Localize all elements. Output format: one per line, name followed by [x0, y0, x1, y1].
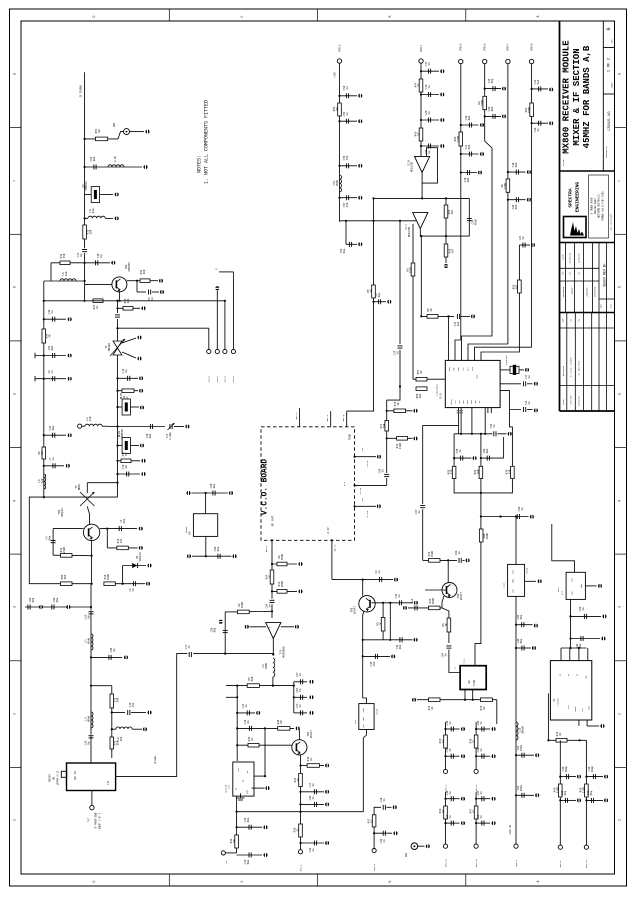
svg-text:0F: 0F [417, 83, 420, 87]
svg-text:APPROVED: APPROVED [594, 286, 597, 297]
svg-text:45b: 45b [372, 661, 376, 666]
svg-text:B: B [388, 880, 392, 882]
svg-text:0F: 0F [431, 706, 434, 710]
svg-text:MC33/5D: MC33/5D [408, 227, 411, 237]
svg-text:MC33/5D: MC33/5D [411, 162, 414, 172]
svg-text:Vin: Vin [362, 724, 365, 727]
svg-text:1n: 1n [396, 351, 399, 355]
svg-text:MALAGA 6062: MALAGA 6062 [594, 198, 597, 214]
svg-text:10R: 10R [477, 469, 480, 474]
svg-text:MX800 RECEIVER MODULE: MX800 RECEIVER MODULE [562, 40, 572, 154]
svg-text:1n: 1n [151, 297, 154, 301]
svg-text:45b: 45b [345, 202, 349, 207]
svg-text:RF OUT: RF OUT [272, 515, 275, 526]
svg-text:2: 2 [618, 713, 622, 715]
svg-text:100R: 100R [107, 573, 110, 580]
svg-text:302: 302 [64, 574, 67, 579]
svg-text:APP: APP [562, 317, 565, 322]
svg-text:IC4: IC4 [561, 590, 564, 595]
svg-text:0R: 0R [98, 129, 101, 133]
svg-text:NOTES:: NOTES: [197, 155, 203, 173]
svg-text:2N2369: 2N2369 [128, 262, 131, 272]
svg-text:450R: 450R [431, 550, 434, 557]
svg-text:1n: 1n [449, 791, 452, 795]
svg-text:1n: 1n [51, 310, 54, 314]
svg-text:S-1+6: S-1+6 [366, 510, 369, 517]
svg-text:C-P+5: C-P+5 [366, 460, 369, 467]
svg-text:BC847: BC847 [460, 592, 463, 600]
svg-text:6: 6 [618, 286, 622, 288]
svg-text:1n: 1n [449, 815, 452, 819]
svg-text:30b: 30b [148, 433, 152, 438]
svg-text:10R: 10R [143, 269, 146, 274]
svg-text:60b: 60b [467, 144, 471, 149]
svg-text:1n: 1n [346, 112, 349, 116]
svg-text:1a: 1a [521, 507, 524, 511]
svg-text:0p: 0p [88, 615, 91, 619]
svg-text:0p: 0p [80, 253, 83, 257]
svg-text:78L05: 78L05 [376, 708, 379, 715]
svg-text:0C: 0C [442, 739, 445, 743]
svg-text:0.3R: 0.3R [114, 156, 117, 162]
svg-text:2R: 2R [370, 289, 373, 293]
svg-text:2u2: 2u2 [457, 321, 460, 326]
svg-text:0p: 0p [428, 150, 431, 154]
svg-text:10C: 10C [451, 209, 454, 214]
svg-text:60a: 60a [51, 345, 54, 350]
svg-text:45MHZ FOR BANDS A,B: 45MHZ FOR BANDS A,B [582, 45, 592, 148]
svg-text:100K: 100K [432, 597, 435, 604]
svg-text:1n: 1n [346, 86, 349, 90]
svg-text:DRAWN: DRAWN [570, 287, 573, 294]
svg-text:0R: 0R [336, 107, 339, 111]
svg-text:60a: 60a [520, 614, 523, 619]
svg-text:W 3: W 3 [343, 481, 346, 486]
svg-text:Vout: Vout [570, 591, 573, 596]
svg-text:IC-D: IC-D [440, 393, 443, 399]
svg-text:LO: LO [107, 781, 110, 785]
svg-text:RFD-11: RFD-11 [585, 859, 588, 868]
svg-text:6: 6 [13, 286, 17, 288]
svg-text:1n: 1n [299, 704, 302, 708]
svg-text:45a: 45a [132, 702, 135, 707]
svg-text:1 OF 2: 1 OF 2 [608, 57, 612, 72]
svg-text:RFD-3: RFD-3 [444, 784, 447, 791]
svg-text:160R: 160R [241, 601, 244, 608]
svg-text:250R: 250R [281, 580, 284, 587]
svg-text:0F: 0F [417, 132, 420, 136]
svg-text:1K: 1K [379, 622, 382, 626]
svg-text:45M15B: 45M15B [121, 429, 124, 439]
svg-text:A: A [536, 15, 540, 17]
svg-text:0F: 0F [559, 732, 562, 736]
svg-text:ML#9: ML#9 [120, 392, 123, 399]
svg-text:TCXO: TCXO [473, 679, 476, 686]
svg-text:1n: 1n [449, 748, 452, 752]
svg-text:100R: 100R [409, 266, 412, 273]
svg-text:1n: 1n [493, 424, 496, 428]
svg-text:11/01/97: 11/01/97 [578, 252, 581, 263]
svg-text:DATE: DATE [562, 399, 565, 405]
svg-text:0R: 0R [233, 839, 236, 843]
svg-text:TITLE: TITLE [562, 159, 565, 166]
svg-text:D: D [92, 880, 96, 882]
svg-text:60b: 60b [466, 177, 470, 182]
svg-text:10F: 10F [419, 393, 422, 398]
svg-text:1K: 1K [430, 308, 433, 312]
svg-text:RFD-5: RFD-5 [475, 784, 478, 791]
svg-text:CHECKED: CHECKED [586, 287, 589, 297]
svg-text:1n: 1n [480, 748, 483, 752]
svg-text:RF IF: RF IF [74, 770, 77, 779]
svg-text:60b: 60b [514, 162, 518, 167]
svg-text:0C: 0C [442, 809, 445, 813]
svg-text:1a: 1a [458, 551, 461, 555]
svg-text:60p: 60p [491, 78, 494, 83]
svg-text:1n: 1n [428, 111, 431, 115]
svg-text:BAT-0: BAT-0 [342, 414, 345, 421]
svg-text:RFD-9: RFD-9 [559, 860, 562, 867]
svg-text:MIXER & IF SECTION: MIXER & IF SECTION [572, 48, 582, 145]
svg-text:5: 5 [13, 393, 17, 395]
svg-text:110R: 110R [399, 442, 402, 449]
svg-text:1a: 1a [418, 510, 421, 514]
svg-text:CS815-1G: CS815-1G [608, 111, 612, 131]
svg-text:+13: +13 [361, 447, 364, 452]
svg-text:2-20p: 2-20p [169, 432, 172, 440]
svg-text:1n: 1n [480, 721, 483, 725]
svg-text:3uH: 3uH [65, 271, 68, 276]
svg-text:407: 407 [452, 248, 455, 253]
svg-text:22R: 22R [450, 469, 453, 474]
svg-text:50R: 50R [117, 740, 120, 745]
svg-text:3uH: 3uH [92, 208, 95, 213]
svg-text:RFD-2: RFD-2 [515, 859, 518, 866]
svg-text:60p: 60p [590, 790, 593, 795]
svg-text:SHEET: SHEET [611, 81, 614, 88]
svg-text:4: 4 [13, 500, 17, 502]
svg-text:100p: 100p [591, 765, 594, 772]
svg-text:1uH: 1uH [89, 416, 92, 421]
svg-text:Vout: Vout [362, 708, 365, 713]
svg-text:1C: 1C [297, 828, 300, 832]
svg-text:360uH: 360uH [522, 726, 525, 734]
svg-text:45b: 45b [345, 155, 349, 160]
svg-text:1n: 1n [132, 588, 135, 592]
svg-text:+10V: +10V [333, 72, 336, 78]
svg-text:60b: 60b [213, 627, 217, 632]
svg-text:SEAXX REV B+: SEAXX REV B+ [603, 263, 607, 287]
svg-text:1n: 1n [398, 594, 401, 598]
svg-text:DATE: DATE [562, 254, 565, 260]
svg-text:BFQ34+: BFQ34+ [61, 507, 64, 517]
svg-text:R5N: R5N [448, 367, 451, 370]
svg-text:1N4148: 1N4148 [139, 552, 142, 562]
svg-text:60a: 60a [378, 292, 381, 297]
svg-text:1n: 1n [188, 645, 191, 649]
svg-text:G: G [606, 27, 612, 30]
svg-text:DATA: DATA [574, 706, 577, 712]
svg-text:22R: 22R [509, 469, 512, 474]
svg-text:1n: 1n [51, 370, 54, 374]
svg-text:1n: 1n [480, 791, 483, 795]
svg-text:4R: 4R [49, 334, 52, 338]
svg-text:60a: 60a [213, 483, 216, 488]
svg-text:60a: 60a [247, 859, 250, 864]
svg-text:0C: 0C [125, 452, 128, 456]
svg-text:CN6: CN6 [113, 122, 116, 127]
svg-text:1n: 1n [383, 839, 386, 843]
svg-text:0C: 0C [251, 737, 254, 741]
svg-text:60b: 60b [490, 106, 494, 111]
svg-text:60b: 60b [467, 115, 471, 120]
svg-text:60a: 60a [52, 425, 55, 430]
svg-text:1K: 1K [397, 402, 400, 406]
svg-text:1R: 1R [269, 575, 272, 579]
svg-text:60A: 60A [486, 448, 489, 453]
svg-text:RFD-5: RFD-5 [460, 43, 463, 51]
svg-text:1: 1 [618, 819, 622, 821]
svg-text:200R: 200R [336, 179, 339, 186]
svg-text:3d: 3d [124, 465, 128, 469]
svg-text:10R: 10R [383, 423, 386, 428]
svg-text:0C: 0C [96, 305, 99, 309]
svg-text:BAT-3: BAT-3 [334, 544, 337, 551]
svg-text:0C: 0C [370, 819, 373, 823]
svg-text:60a: 60a [520, 638, 523, 643]
svg-text:260R: 260R [265, 662, 268, 669]
svg-text:0p: 0p [100, 254, 103, 258]
svg-text:CLF: CLF [462, 367, 465, 370]
svg-text:PHONE +61 9 2484 2783: PHONE +61 9 2484 2783 [601, 191, 604, 221]
svg-text:0C: 0C [472, 809, 475, 813]
svg-text:RFD-8: RFD-8 [530, 43, 533, 51]
svg-text:78L05: 78L05 [526, 567, 529, 574]
svg-text:1n: 1n [269, 604, 272, 608]
svg-text:+13: +13 [361, 497, 364, 502]
svg-text:1a: 1a [312, 796, 315, 800]
svg-text:1a: 1a [245, 704, 248, 708]
svg-text:2u2: 2u2 [537, 79, 540, 84]
svg-text:220R: 220R [481, 99, 484, 106]
svg-text:X2: X2 [468, 680, 471, 684]
svg-text:0p: 0p [125, 369, 128, 373]
svg-text:1a: 1a [582, 607, 585, 611]
svg-text:REVISION: REVISION [562, 365, 565, 376]
svg-text:2u2: 2u2 [411, 598, 414, 603]
svg-text:60a: 60a [217, 546, 220, 551]
svg-text:D: D [92, 15, 96, 17]
svg-text:0C: 0C [472, 739, 475, 743]
svg-text:MSA0886: MSA0886 [283, 646, 286, 657]
svg-text:1n: 1n [428, 62, 431, 66]
svg-text:50R: 50R [251, 676, 254, 681]
svg-text:11/01/99: 11/01/99 [569, 252, 572, 263]
svg-text:LRFMS-2-17: LRFMS-2-17 [56, 770, 59, 785]
svg-text:5 TRUDE ROAD: 5 TRUDE ROAD [590, 197, 593, 214]
svg-text:SPECTRA: SPECTRA [568, 188, 574, 208]
svg-text:IC2: IC2 [502, 582, 505, 587]
svg-text:CN4-4: CN4-4 [232, 375, 235, 382]
svg-text:G: SER P/NS: G: SER P/NS [578, 360, 581, 375]
svg-text:CN4-3: CN4-3 [223, 375, 226, 382]
svg-text:60b: 60b [398, 644, 402, 649]
svg-text:60uH: 60uH [88, 715, 91, 722]
svg-text:0p: 0p [113, 648, 116, 652]
svg-text:PRF: PRF [453, 367, 456, 370]
svg-text:1n: 1n [480, 815, 483, 819]
svg-text:GND: GND [463, 400, 465, 403]
svg-text:IF SIGNAL: IF SIGNAL [79, 84, 82, 97]
svg-text:40uH: 40uH [88, 637, 91, 644]
svg-text:1n: 1n [528, 401, 531, 405]
svg-text:1b0: 1b0 [119, 736, 123, 741]
svg-text:1n: 1n [428, 85, 431, 89]
svg-text:220R: 220R [528, 106, 531, 113]
svg-text:100p: 100p [565, 765, 568, 772]
svg-text:1a: 1a [378, 570, 381, 574]
svg-text:M1: M1 [53, 776, 56, 780]
svg-text:C: C [240, 880, 244, 882]
svg-text:CN4-2: CN4-2 [216, 375, 219, 382]
svg-text:REFIN: REFIN [451, 399, 453, 404]
svg-text:(C) Copyright: (C) Copyright [610, 213, 613, 231]
svg-text:Vout: Vout [511, 570, 514, 575]
svg-text:TA78L05: TA78L05 [224, 784, 227, 793]
svg-text:Y1RA BSL: Y1RA BSL [505, 354, 508, 365]
svg-text:60a: 60a [49, 535, 52, 540]
svg-text:1n: 1n [299, 673, 302, 677]
svg-text:1-P+6: 1-P+6 [359, 487, 362, 494]
svg-text:BAT-2: BAT-2 [295, 412, 298, 419]
svg-text:IC3: IC3 [228, 784, 231, 789]
svg-text:218R: 218R [63, 546, 66, 553]
svg-text:CN2: CN2 [405, 852, 408, 857]
svg-text:497: 497 [120, 538, 123, 543]
svg-text:1n: 1n [445, 653, 448, 657]
svg-text:RFD-20: RFD-20 [475, 858, 478, 867]
svg-text:A: A [536, 880, 540, 882]
svg-text:110R: 110R [457, 135, 460, 142]
svg-text:7: 7 [13, 180, 17, 182]
svg-text:V.C.O. BOARD: V.C.O. BOARD [262, 459, 270, 515]
svg-text:"A": "A" [86, 817, 90, 822]
svg-text:0C: 0C [310, 757, 313, 761]
svg-text:60b: 60b [31, 597, 35, 602]
svg-text:IC2: IC2 [354, 719, 357, 724]
svg-text:DESIGNED: DESIGNED [562, 286, 565, 297]
svg-text:1K: 1K [445, 623, 448, 627]
svg-text:+17dB+: +17dB+ [154, 755, 157, 765]
svg-text:RFD-10: RFD-10 [444, 858, 447, 867]
svg-text:1n: 1n [528, 375, 531, 379]
svg-text:RFD-4: RFD-4 [420, 44, 423, 52]
svg-text:0b: 0b [246, 720, 250, 724]
svg-text:1a: 1a [459, 449, 462, 453]
svg-text:E: FAIL, rework: E: FAIL, rework [570, 356, 573, 376]
svg-text:28/8/00: 28/8/00 [570, 395, 573, 405]
svg-text:10R: 10R [90, 229, 93, 234]
svg-text:1a: 1a [52, 457, 55, 461]
svg-text:60a: 60a [56, 597, 59, 602]
svg-text:RFD-6: RFD-6 [484, 43, 487, 51]
svg-text:BAT-1: BAT-1 [326, 414, 329, 421]
svg-text:+7.4V: +7.4V [327, 527, 330, 535]
svg-text:TO FRONT END: TO FRONT END [95, 812, 98, 829]
svg-text:60a: 60a [343, 248, 346, 253]
svg-text:0R: 0R [41, 451, 44, 455]
svg-text:3: 3 [618, 606, 622, 608]
svg-text:MIXER: MIXER [49, 774, 52, 782]
svg-text:A2: A2 [559, 674, 562, 676]
svg-text:73C40X: 73C40X [557, 697, 560, 706]
svg-text:C: C [240, 15, 244, 17]
svg-text:60b: 60b [514, 204, 518, 209]
svg-text:2: 2 [13, 713, 17, 715]
svg-text:1n: 1n [383, 798, 386, 802]
svg-text:3uH: 3uH [41, 478, 44, 483]
svg-text:3846A: 3846A [185, 526, 188, 533]
svg-text:450a: 450a [520, 744, 523, 751]
svg-text:8: 8 [13, 73, 17, 75]
svg-text:45M15A: 45M15A [85, 181, 88, 191]
svg-text:RFD-4: RFD-4 [299, 864, 302, 871]
svg-text:+7 0+1: +7 0+1 [463, 658, 466, 666]
svg-text:60a: 60a [123, 518, 126, 523]
svg-text:BC847: BC847 [354, 606, 357, 614]
svg-text:8: 8 [618, 73, 622, 75]
svg-text:5: 5 [618, 393, 622, 395]
svg-text:110R: 110R [557, 786, 560, 793]
svg-text:110R: 110R [583, 786, 586, 793]
svg-text:B: B [388, 15, 392, 17]
svg-text:1a: 1a [522, 236, 525, 240]
svg-text:1n: 1n [449, 721, 452, 725]
svg-text:CN4-1: CN4-1 [207, 375, 210, 382]
svg-text:100a: 100a [520, 784, 523, 791]
svg-text:45R: 45R [63, 253, 66, 258]
svg-text:1n: 1n [382, 469, 385, 473]
svg-text:1a: 1a [312, 848, 315, 852]
svg-text:60a: 60a [247, 817, 250, 822]
svg-text:4: 4 [618, 500, 622, 502]
svg-text:0F: 0F [420, 370, 423, 374]
svg-text:3: 3 [13, 606, 17, 608]
svg-text:VDD: VDD [459, 400, 461, 403]
svg-text:1. NOT ALL COMPONENTS FITTED: 1. NOT ALL COMPONENTS FITTED [204, 100, 210, 184]
svg-text:1: 1 [13, 819, 17, 821]
svg-text:100R: 100R [486, 532, 489, 539]
svg-text:ENGINEERING: ENGINEERING [575, 182, 581, 213]
svg-text:250R: 250R [281, 553, 284, 560]
svg-text:DRAWING NO: DRAWING NO [605, 145, 608, 157]
svg-text:30R: 30R [117, 697, 120, 702]
svg-text:MD10: MD10 [78, 483, 81, 490]
svg-text:1K: 1K [297, 778, 300, 782]
svg-text:RFD-6: RFD-6 [373, 863, 376, 870]
svg-text:0R: 0R [280, 720, 283, 724]
svg-text:0p: 0p [88, 741, 91, 745]
svg-text:+12V IN: +12V IN [509, 825, 512, 835]
svg-text:0F: 0F [483, 706, 486, 710]
svg-text:SHEET 2 OF 2: SHEET 2 OF 2 [98, 812, 101, 829]
svg-text:BAT-4: BAT-4 [265, 545, 268, 552]
svg-text:1a: 1a [312, 783, 315, 787]
svg-text:11/01/02: 11/01/02 [578, 395, 581, 406]
svg-text:407: 407 [516, 284, 519, 289]
svg-text:7: 7 [618, 180, 622, 182]
svg-text:BC847: BC847 [310, 730, 313, 738]
